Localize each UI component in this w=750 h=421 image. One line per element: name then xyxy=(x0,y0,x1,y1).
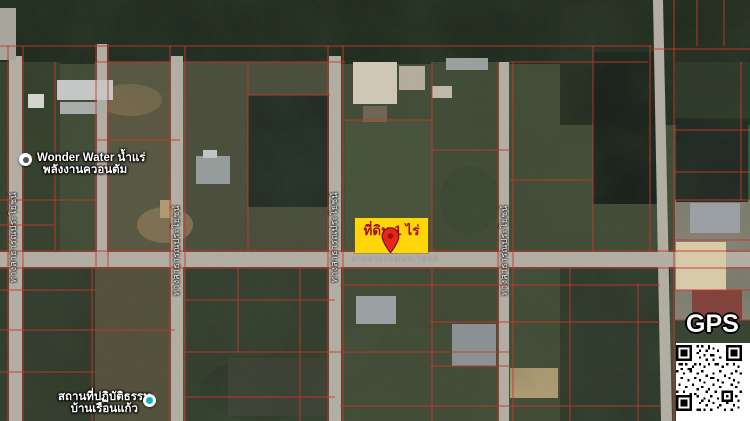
street-label-vertical-3: ทางสาธารณประโยชน์ xyxy=(327,192,341,283)
poi-text-line2: พลังงานควอนตัม xyxy=(37,164,145,176)
poi-text-line1: Wonder Water น้ำแร่ xyxy=(37,152,145,164)
satellite-map-image xyxy=(0,0,750,421)
street-label-horizontal: ทางสาธารณประโยชน์ xyxy=(352,254,439,264)
qr-code xyxy=(676,343,750,421)
gps-label: GPS xyxy=(686,310,739,339)
poi-text-line1: สถานที่ปฏิบัติธรรม xyxy=(58,391,151,403)
poi-pin-temple[interactable] xyxy=(143,394,156,407)
street-label-vertical-2: ทางสาธารณประโยชน์ xyxy=(169,205,183,296)
poi-label-wonder-water: Wonder Water น้ำแร่ พลังงานควอนตัม xyxy=(37,152,145,177)
poi-dot-icon xyxy=(23,157,29,163)
poi-circle-icon xyxy=(19,153,32,166)
poi-label-temple: สถานที่ปฏิบัติธรรม บ้านเรือนแก้ว xyxy=(58,391,151,416)
poi-pin-wonder-water[interactable] xyxy=(19,153,32,166)
poi-text-line2: บ้านเรือนแก้ว xyxy=(58,403,151,415)
location-pin-icon xyxy=(381,227,400,254)
poi-dot-icon xyxy=(146,397,153,404)
street-label-vertical-1: ทางสาธารณประโยชน์ xyxy=(6,192,20,283)
poi-circle-icon xyxy=(143,394,156,407)
street-label-vertical-4: ทางสาธารณประโยชน์ xyxy=(497,205,511,296)
map-canvas[interactable]: Wonder Water น้ำแร่ พลังงานควอนตัม สถานท… xyxy=(0,0,750,421)
